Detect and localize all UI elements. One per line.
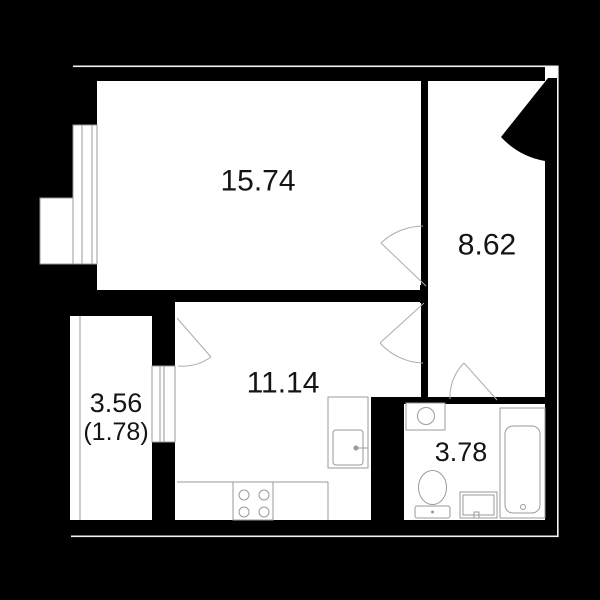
toilet-bowl	[419, 471, 447, 505]
kitchen-sink-counter	[328, 397, 368, 468]
wall-bath-top-right	[497, 397, 557, 404]
outer-hairline-right	[557, 66, 559, 538]
room-area-label-balcony: (1.78)	[83, 418, 148, 446]
wall-bottom	[70, 520, 558, 536]
exterior-ledge	[40, 198, 73, 264]
bathtub-outer	[500, 408, 545, 518]
room-area-label-kitchen: 11.14	[247, 367, 320, 400]
wall-balcony-pier-bot	[152, 442, 175, 520]
wall-hall-kitchen-stub	[421, 363, 428, 397]
window-living	[73, 125, 97, 264]
room-area-label-balcony: 3.56	[90, 388, 143, 418]
room-area-label-hallway: 8.62	[458, 229, 516, 262]
wall-top	[73, 67, 545, 81]
wall-hall-living	[421, 81, 428, 225]
kitchen-faucet-dot	[354, 446, 359, 451]
floor-plan-screenshot: 15.748.6211.143.783.56(1.78)	[0, 0, 600, 600]
duct-column	[371, 397, 404, 521]
room-area-label-bathroom: 3.78	[435, 437, 488, 467]
outer-hairline-bottom	[71, 536, 559, 538]
wall-balcony-pier-top	[152, 290, 175, 318]
wall-left-upper	[73, 81, 97, 126]
wall-living-kitchen	[175, 290, 428, 302]
wall-door-cap	[420, 285, 428, 303]
wall-left-lower	[73, 264, 97, 290]
floor-plan: 15.748.6211.143.783.56(1.78)	[0, 0, 600, 600]
toilet-button	[431, 511, 434, 514]
room-area-label-living-room: 15.74	[220, 165, 295, 198]
outer-hairline-top	[73, 66, 559, 68]
